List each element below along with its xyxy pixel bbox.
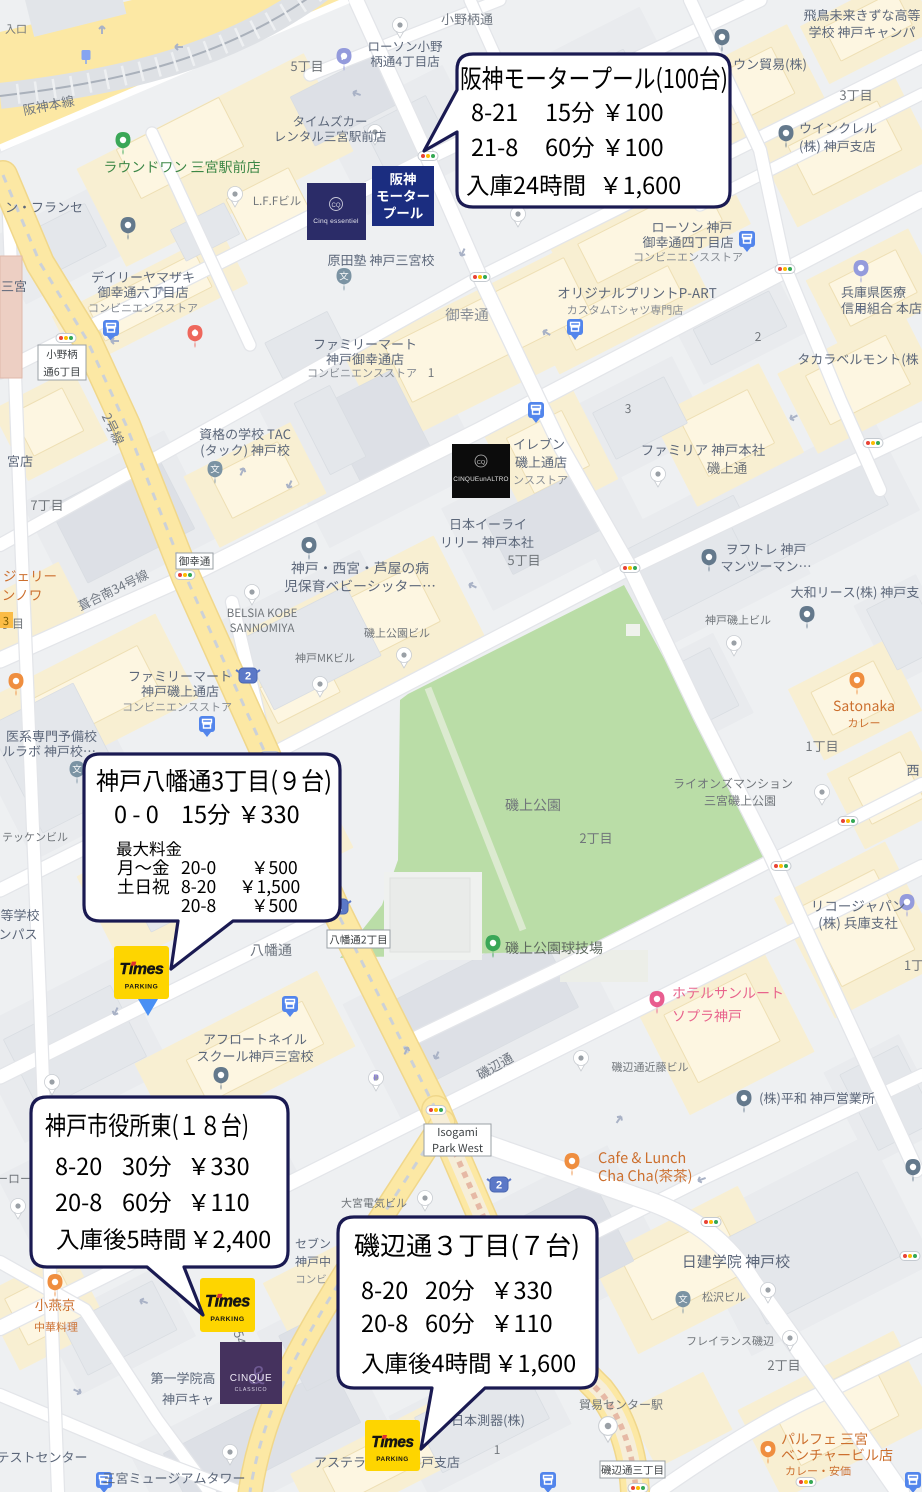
svg-text:P: P [373, 1074, 379, 1083]
svg-text:CINQUEunALTRO: CINQUEunALTRO [453, 476, 508, 483]
svg-text:Cinq essentiel: Cinq essentiel [313, 218, 359, 225]
svg-text:PARKING: PARKING [376, 1456, 409, 1463]
svg-text:P: P [341, 52, 347, 62]
svg-text:PARKING: PARKING [125, 983, 158, 990]
svg-text:PARKING: PARKING [210, 1316, 244, 1323]
svg-text:Tımes: Tımes [205, 1293, 250, 1311]
svg-text:Tımes: Tımes [371, 1434, 413, 1451]
svg-text:CLASSICO: CLASSICO [235, 1387, 268, 1393]
svg-text:CQ: CQ [477, 460, 486, 466]
svg-text:Tımes: Tımes [120, 961, 164, 978]
svg-text:CINQUE: CINQUE [230, 1373, 273, 1384]
svg-text:CQ: CQ [332, 203, 341, 209]
